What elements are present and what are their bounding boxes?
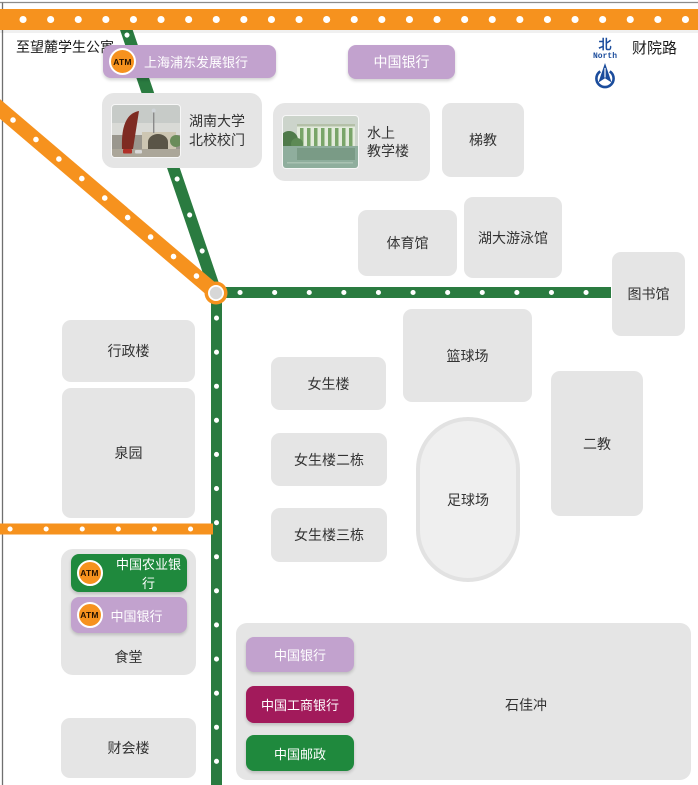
- area-shijiachong: 中国银行 中国工商银行 中国邮政 石佳冲: [236, 623, 691, 780]
- compass-en-label: North: [588, 52, 622, 62]
- building-label: 泉园: [115, 443, 143, 463]
- compass-zh-label: 北: [588, 38, 622, 52]
- building-label: 二教: [583, 434, 611, 454]
- road-name-wanglu: 至望麓学生公寓: [16, 37, 114, 57]
- gate-label-line2: 北校校门: [189, 131, 245, 149]
- building-label: 图书馆: [628, 284, 670, 304]
- building-swimming-pool: 湖大游泳馆: [464, 197, 562, 278]
- roundabout-icon: [205, 282, 228, 305]
- building-erjiao: 二教: [551, 371, 643, 516]
- poi-spdb-label: 上海浦东发展银行: [144, 52, 248, 71]
- building-label: 梯教: [469, 130, 497, 150]
- poi-boc-top: 中国银行: [348, 45, 455, 79]
- building-label: 篮球场: [447, 346, 489, 366]
- poi-china-post: 中国邮政: [246, 735, 354, 771]
- shijiachong-label: 石佳冲: [471, 695, 581, 715]
- gate-label-line1: 湖南大学: [189, 112, 245, 130]
- poi-boc-top-label: 中国银行: [374, 52, 430, 72]
- building-label: 女生楼三栋: [294, 525, 364, 545]
- building-label: 行政楼: [108, 341, 150, 361]
- waterside-label-line1: 水上: [367, 124, 409, 142]
- building-girls-dorm-2: 女生楼二栋: [271, 433, 387, 486]
- campus-map: 至望麓学生公寓 财院路 北 North ATM 上海浦东发展银行 中国银行: [0, 0, 698, 785]
- gate-photo: [112, 105, 180, 157]
- building-gymnasium: 体育馆: [358, 210, 457, 276]
- building-label: 女生楼二栋: [294, 450, 364, 470]
- building-label: 足球场: [447, 490, 489, 510]
- poi-icbc-bank: 中国工商银行: [246, 686, 354, 723]
- poi-label: 中国邮政: [274, 744, 326, 763]
- building-label: 财会楼: [108, 738, 150, 758]
- building-girls-dorm-3: 女生楼三栋: [271, 508, 387, 562]
- building-finance: 财会楼: [61, 718, 196, 778]
- poi-spdb-bank: ATM 上海浦东发展银行: [103, 45, 276, 78]
- poi-boc-shijiachong: 中国银行: [246, 637, 354, 672]
- compass-icon: [592, 62, 618, 89]
- poi-abc-label: 中国农业银行: [111, 554, 187, 592]
- card-waterside-building: 水上 教学楼: [273, 103, 430, 181]
- poi-label: 中国工商银行: [261, 695, 339, 714]
- waterside-building-photo: [283, 116, 358, 168]
- canteen-label: 食堂: [115, 647, 143, 667]
- building-admin: 行政楼: [62, 320, 195, 382]
- atm-icon: ATM: [77, 602, 103, 628]
- football-field: 足球场: [416, 417, 520, 582]
- north-indicator: 北 North: [588, 38, 622, 89]
- atm-icon: ATM: [77, 560, 103, 586]
- building-label: 体育馆: [387, 233, 429, 253]
- building-label: 女生楼: [308, 374, 350, 394]
- building-girls-dorm-1: 女生楼: [271, 357, 386, 410]
- card-north-gate: 湖南大学 北校校门: [102, 93, 262, 168]
- road-name-caiyuan: 财院路: [632, 37, 677, 58]
- atm-icon: ATM: [109, 48, 136, 75]
- poi-boc-canteen: ATM 中国银行: [71, 597, 187, 633]
- waterside-label-line2: 教学楼: [367, 142, 409, 160]
- building-label: 湖大游泳馆: [478, 228, 548, 248]
- building-canteen: ATM 中国农业银行 ATM 中国银行 食堂: [61, 549, 196, 675]
- building-basketball-court: 篮球场: [403, 309, 532, 402]
- poi-boc-canteen-label: 中国银行: [111, 606, 163, 625]
- building-library: 图书馆: [612, 252, 685, 336]
- poi-abc-bank: ATM 中国农业银行: [71, 554, 187, 592]
- building-tijiao: 梯教: [442, 103, 524, 177]
- poi-label: 中国银行: [274, 645, 326, 664]
- building-quanyuan: 泉园: [62, 388, 195, 518]
